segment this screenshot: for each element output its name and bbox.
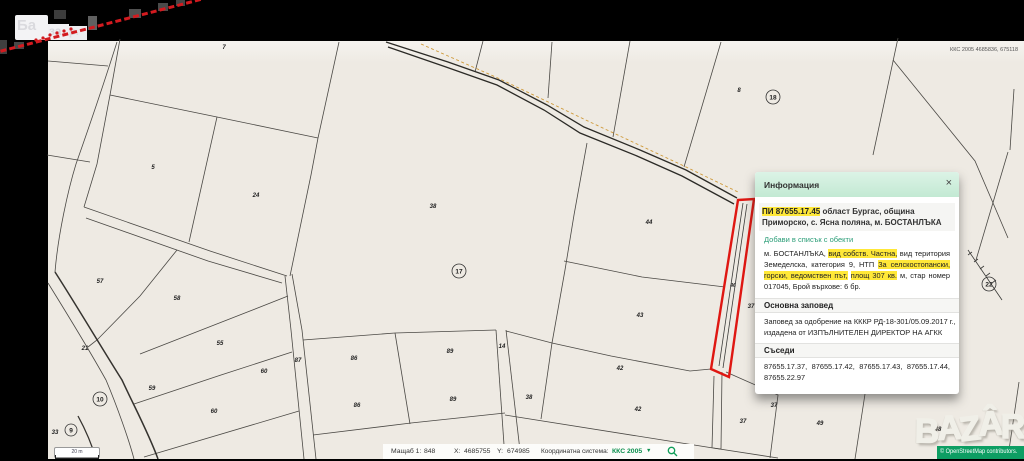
- svg-text:49: 49: [816, 421, 824, 427]
- svg-text:38: 38: [430, 204, 437, 210]
- svg-text:59: 59: [149, 386, 156, 392]
- svg-text:37: 37: [748, 304, 755, 310]
- svg-text:86: 86: [351, 356, 358, 362]
- svg-text:38: 38: [526, 395, 533, 401]
- svg-text:42: 42: [616, 366, 624, 372]
- svg-text:37: 37: [740, 419, 747, 425]
- svg-text:37: 37: [771, 403, 778, 409]
- svg-text:9: 9: [69, 428, 73, 435]
- svg-text:42: 42: [634, 407, 642, 413]
- svg-text:24: 24: [252, 193, 260, 199]
- svg-text:33: 33: [52, 430, 59, 436]
- svg-text:86: 86: [354, 403, 361, 409]
- svg-text:87: 87: [295, 358, 302, 364]
- svg-text:22: 22: [985, 282, 993, 289]
- svg-text:44: 44: [645, 220, 653, 226]
- svg-text:89: 89: [447, 349, 454, 355]
- svg-text:55: 55: [217, 341, 224, 347]
- svg-text:17: 17: [455, 269, 463, 276]
- svg-text:18: 18: [769, 95, 777, 102]
- svg-text:14: 14: [499, 344, 506, 350]
- svg-text:43: 43: [636, 313, 644, 319]
- svg-text:89: 89: [450, 397, 457, 403]
- svg-text:ККС 2005 4685836, 675118: ККС 2005 4685836, 675118: [950, 47, 1018, 53]
- svg-text:60: 60: [211, 409, 218, 415]
- svg-text:21: 21: [81, 346, 89, 352]
- svg-text:58: 58: [174, 296, 181, 302]
- svg-text:60: 60: [261, 369, 268, 375]
- svg-text:10: 10: [96, 397, 104, 404]
- svg-text:57: 57: [97, 279, 104, 285]
